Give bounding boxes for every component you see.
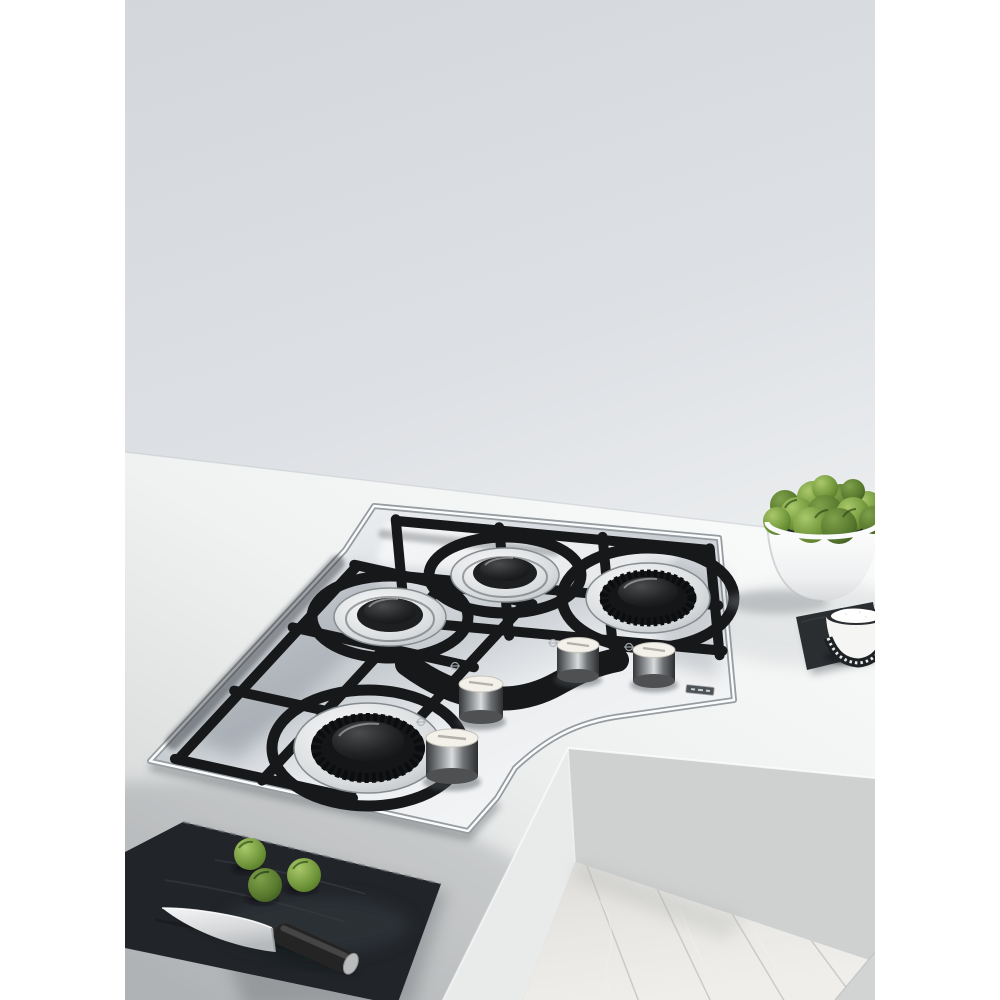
page (0, 0, 1000, 1000)
sprout (234, 838, 266, 870)
burner-cap (480, 557, 530, 581)
sprout (287, 858, 321, 892)
burner-cap (364, 598, 416, 624)
burner-cap (618, 577, 678, 607)
knob-far-right (630, 643, 678, 693)
sprout (248, 868, 282, 902)
burner-wok-front-left (294, 703, 442, 793)
burner-back-left (334, 588, 446, 646)
knob-mid-left (456, 676, 506, 730)
product-photo (125, 0, 875, 1000)
burner-back-centre (451, 548, 559, 602)
burner-cap (332, 721, 404, 761)
knob-mid-right (554, 638, 602, 688)
photo-svg (125, 0, 875, 1000)
burner-wok-right (586, 563, 710, 633)
knob-front-left (423, 729, 481, 791)
